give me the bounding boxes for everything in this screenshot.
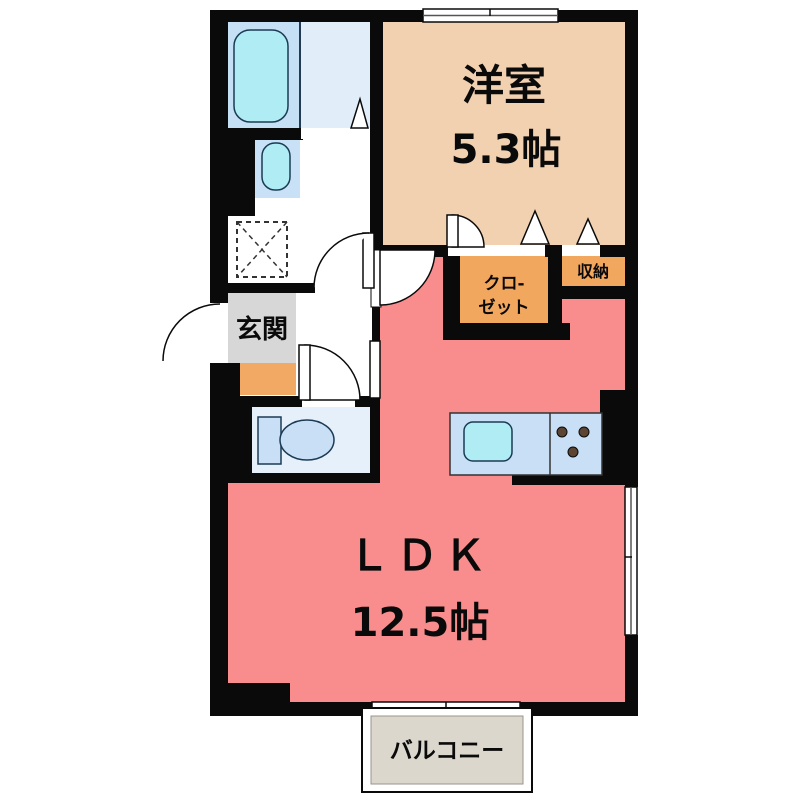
- partition-wall: [370, 341, 380, 398]
- opening: [301, 128, 370, 139]
- closet-label-line2: ゼット: [479, 297, 530, 318]
- wall-notch: [228, 683, 290, 705]
- western-room-door-leaf: [447, 215, 458, 247]
- wall: [228, 128, 255, 216]
- genkan-label: 玄関: [236, 314, 288, 345]
- stove-burner: [568, 447, 578, 457]
- western-room-label: 洋室: [462, 61, 546, 110]
- wall-closet-divider: [548, 245, 562, 340]
- toilet-bowl: [280, 420, 334, 460]
- opening: [562, 245, 600, 256]
- closet-label-line1: クロ-: [483, 274, 524, 294]
- wall-kitchen-corner: [600, 390, 638, 483]
- wall: [228, 400, 252, 473]
- stove-burner: [579, 427, 589, 437]
- stove-burner: [557, 427, 567, 437]
- wall: [372, 305, 380, 343]
- storage-label: 収納: [577, 262, 609, 281]
- kitchen-sink: [464, 422, 512, 461]
- washing-machine-space: [237, 222, 287, 277]
- balcony-label: バルコニー: [390, 738, 505, 764]
- wall: [370, 22, 383, 250]
- wall: [600, 245, 638, 257]
- western-room-size: 5.3帖: [451, 127, 562, 173]
- wall: [210, 363, 228, 716]
- wall: [520, 702, 638, 716]
- genkan-step: [240, 363, 296, 395]
- washbasin: [262, 143, 290, 190]
- floor-plan-canvas: 洋室 5.3帖 ＬＤＫ 12.5帖 玄関 クロ- ゼット 収納 バルコニー: [0, 0, 800, 800]
- ldk-label: ＬＤＫ: [348, 531, 492, 580]
- wall-storage-bottom: [562, 286, 625, 299]
- bathtub: [234, 30, 288, 122]
- wall: [228, 363, 240, 400]
- washroom-door-leaf: [363, 233, 374, 288]
- opening: [211, 303, 228, 363]
- toilet-door-swing-arc: [305, 345, 360, 400]
- wall: [228, 283, 315, 293]
- wall: [228, 473, 380, 483]
- toilet-door-leaf: [299, 345, 310, 400]
- toilet-tank: [258, 417, 281, 464]
- toilet: [258, 417, 334, 464]
- wall: [370, 398, 380, 483]
- wall: [210, 10, 228, 303]
- ldk-floor-left: [228, 473, 372, 702]
- washroom-door-swing-arc: [314, 233, 369, 288]
- ldk-size: 12.5帖: [351, 600, 490, 646]
- kitchen-counter: [450, 413, 602, 475]
- floor-plan: 洋室 5.3帖 ＬＤＫ 12.5帖 玄関 クロ- ゼット 収納 バルコニー: [0, 0, 800, 800]
- wall: [210, 10, 423, 22]
